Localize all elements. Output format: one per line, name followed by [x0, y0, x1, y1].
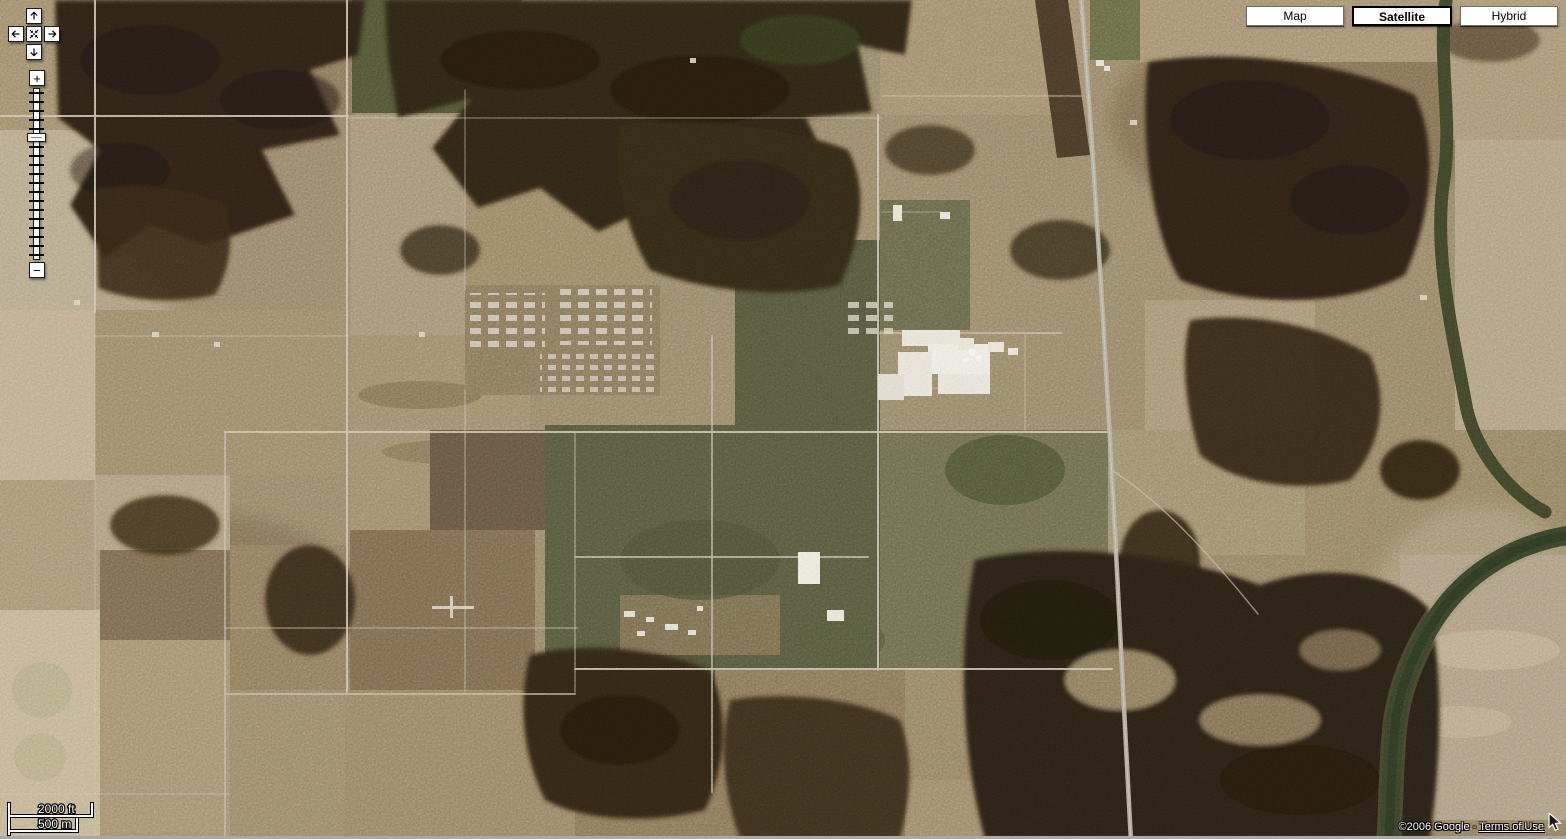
pan-control — [8, 8, 60, 60]
attribution: ©2006 Google - Terms of Use — [1399, 821, 1544, 833]
zoom-tick — [29, 227, 44, 229]
zoom-tick — [29, 254, 44, 256]
zoom-tick — [29, 200, 44, 202]
zoom-tick — [29, 209, 44, 211]
zoom-out-button[interactable]: − — [29, 262, 45, 278]
zoom-tick — [29, 146, 44, 148]
arrow-right-icon — [46, 28, 58, 40]
zoom-slider-thumb[interactable] — [27, 133, 46, 142]
zoom-tick — [29, 119, 44, 121]
zoom-tick — [29, 155, 44, 157]
satellite-imagery[interactable] — [0, 0, 1566, 839]
zoom-tick — [29, 110, 44, 112]
arrow-left-icon — [10, 28, 22, 40]
pan-left-button[interactable] — [8, 26, 24, 42]
map-viewport: + − Map Satellite Hybrid 2000 ft 500 m ©… — [0, 0, 1566, 839]
zoom-tick — [29, 236, 44, 238]
pan-up-button[interactable] — [26, 8, 42, 24]
zoom-tick — [29, 128, 44, 130]
zoom-in-button[interactable]: + — [29, 70, 45, 86]
zoom-tick — [29, 101, 44, 103]
map-type-button-map[interactable]: Map — [1246, 6, 1344, 26]
zoom-control: + − — [27, 70, 47, 278]
arrow-down-icon — [28, 46, 40, 58]
attribution-separator: - — [1470, 821, 1480, 833]
recenter-icon — [28, 28, 40, 40]
zoom-tick — [29, 182, 44, 184]
zoom-tick — [29, 164, 44, 166]
arrow-up-icon — [28, 10, 40, 22]
zoom-tick — [29, 92, 44, 94]
zoom-tick — [29, 218, 44, 220]
zoom-tick — [29, 191, 44, 193]
zoom-tick — [29, 245, 44, 247]
zoom-tick — [29, 173, 44, 175]
terms-of-use-link[interactable]: Terms of Use — [1479, 821, 1544, 833]
pan-down-button[interactable] — [26, 44, 42, 60]
pan-right-button[interactable] — [44, 26, 60, 42]
map-type-selector: Map Satellite Hybrid — [1246, 6, 1558, 26]
map-type-button-hybrid[interactable]: Hybrid — [1460, 6, 1558, 26]
copyright-text: ©2006 Google — [1399, 821, 1470, 833]
pan-center-button[interactable] — [26, 26, 42, 42]
map-type-button-satellite[interactable]: Satellite — [1352, 6, 1452, 26]
zoom-slider-track[interactable] — [27, 88, 47, 260]
